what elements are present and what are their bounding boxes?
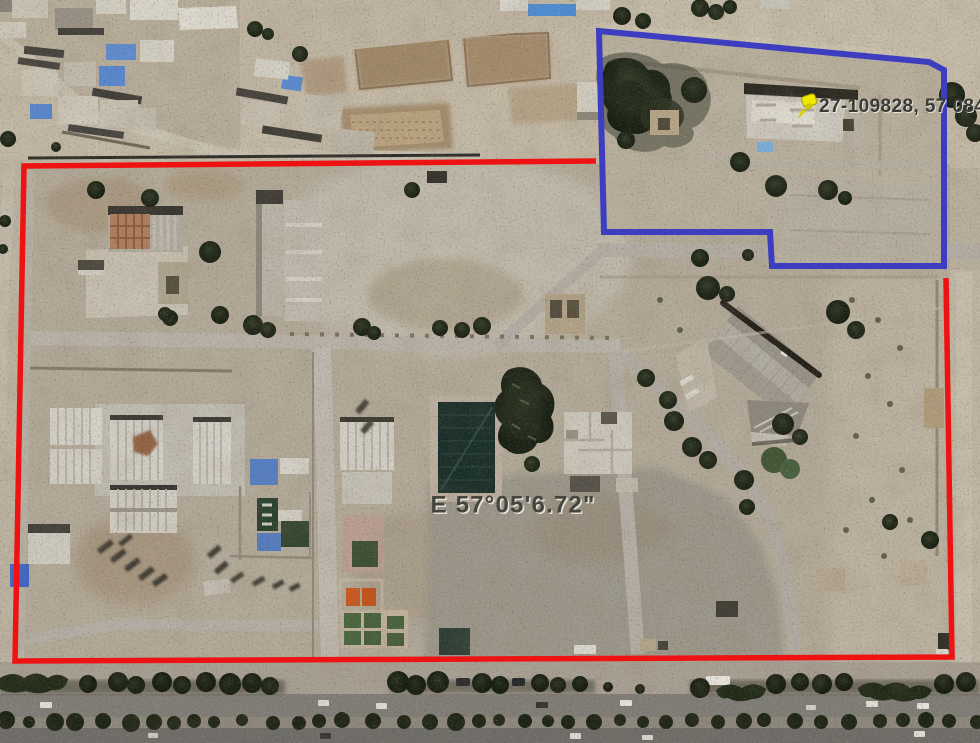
- svg-text:27-109828, 57 084: 27-109828, 57 084: [819, 96, 980, 117]
- svg-text:E 57°05'6.72": E 57°05'6.72": [431, 492, 596, 519]
